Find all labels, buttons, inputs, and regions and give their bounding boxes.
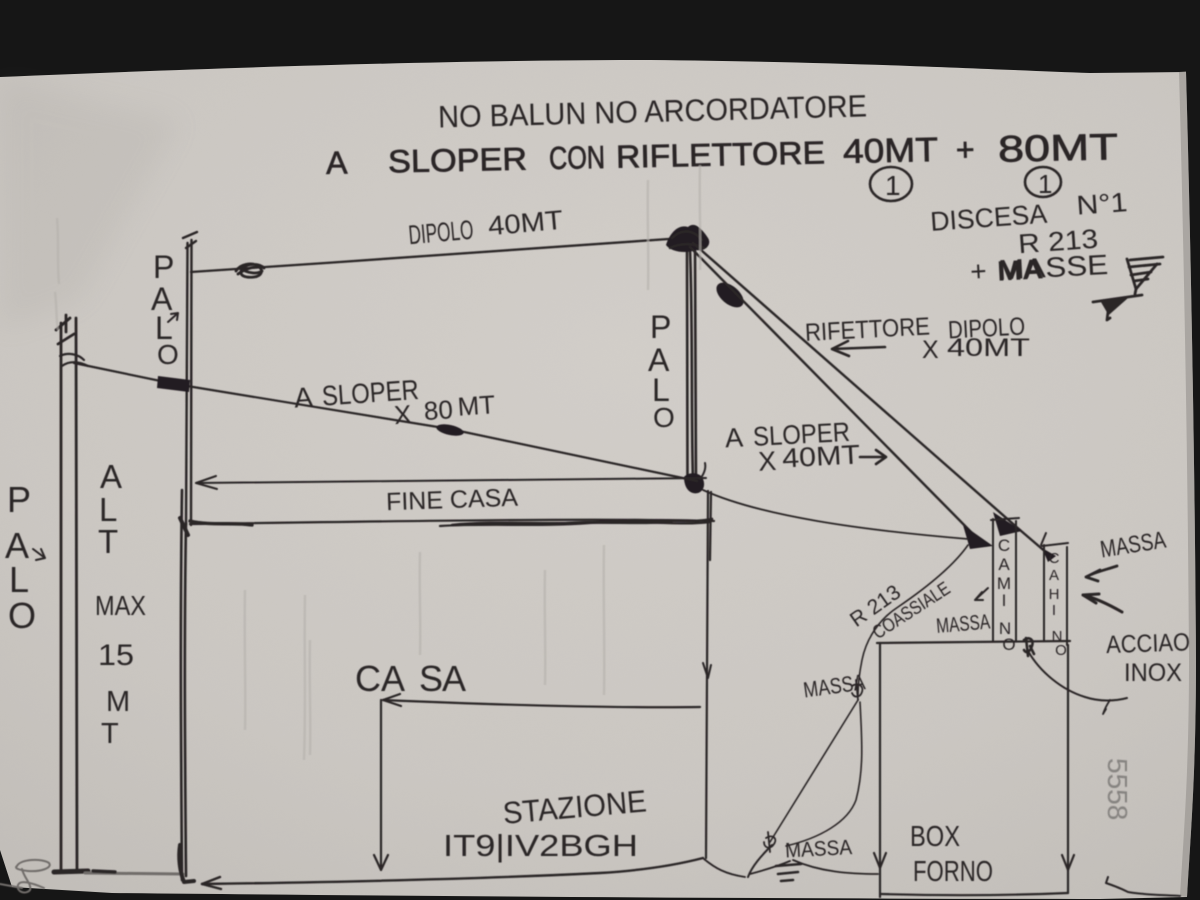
svg-text:A: A	[1049, 567, 1059, 584]
svg-text:BOX: BOX	[910, 821, 960, 853]
svg-text:A: A	[442, 658, 466, 699]
svg-text:T: T	[98, 523, 118, 560]
svg-text:40MT: 40MT	[947, 334, 1030, 362]
svg-text:T: T	[101, 718, 119, 750]
svg-text:O: O	[1055, 642, 1067, 659]
svg-text:MASSA: MASSA	[785, 836, 853, 862]
svg-text:80: 80	[423, 394, 454, 426]
svg-text:MT: MT	[457, 389, 497, 422]
svg-text:P: P	[650, 309, 671, 345]
svg-text:A: A	[293, 381, 314, 413]
svg-text:80MT: 80MT	[998, 126, 1119, 170]
svg-text:IT9|IV2BGH: IT9|IV2BGH	[443, 828, 638, 863]
svg-text:C: C	[1049, 550, 1060, 567]
svg-text:O: O	[8, 595, 36, 636]
svg-text:1: 1	[1038, 169, 1052, 199]
svg-text:A: A	[326, 144, 349, 180]
svg-text:O: O	[157, 339, 179, 370]
svg-text:MA: MA	[996, 253, 1044, 286]
svg-text:SLOPER: SLOPER	[388, 141, 528, 180]
svg-text:MASSA: MASSA	[935, 610, 991, 638]
svg-text:X: X	[922, 336, 939, 364]
svg-text:INOX: INOX	[1124, 659, 1182, 687]
svg-text:CON: CON	[549, 139, 606, 176]
svg-text:C: C	[355, 658, 381, 699]
svg-text:A: A	[998, 555, 1010, 574]
svg-text:O: O	[1002, 635, 1015, 654]
svg-text:FORNO: FORNO	[913, 856, 993, 888]
svg-text:+: +	[969, 255, 987, 287]
svg-text:A: A	[381, 658, 405, 699]
svg-text:P: P	[7, 479, 31, 520]
svg-text:DIPOLO: DIPOLO	[407, 215, 474, 251]
svg-text:O: O	[653, 402, 675, 433]
svg-text:S: S	[419, 658, 443, 699]
svg-text:X: X	[393, 399, 412, 430]
svg-text:FINE CASA: FINE CASA	[386, 484, 519, 517]
svg-text:RIFLETTORE: RIFLETTORE	[616, 134, 826, 174]
svg-text:C: C	[998, 536, 1010, 555]
svg-text:MAX: MAX	[95, 590, 146, 621]
svg-text:ACCIAO: ACCIAO	[1106, 628, 1191, 659]
svg-text:P: P	[153, 249, 174, 285]
svg-text:H: H	[1049, 586, 1060, 603]
svg-text:40MT: 40MT	[843, 131, 939, 171]
svg-text:15: 15	[98, 639, 134, 672]
svg-text:X: X	[757, 446, 777, 477]
svg-text:40MT: 40MT	[781, 439, 860, 473]
svg-text:5558: 5558	[1102, 758, 1133, 820]
svg-text:+: +	[956, 131, 975, 167]
svg-text:M: M	[106, 686, 130, 718]
svg-text:L: L	[9, 559, 29, 600]
svg-text:I: I	[1002, 591, 1007, 610]
svg-text:A: A	[724, 422, 744, 453]
svg-text:N°1: N°1	[1075, 187, 1128, 220]
svg-text:A: A	[100, 458, 122, 495]
svg-text:1: 1	[885, 170, 901, 201]
svg-text:I: I	[1052, 602, 1056, 619]
